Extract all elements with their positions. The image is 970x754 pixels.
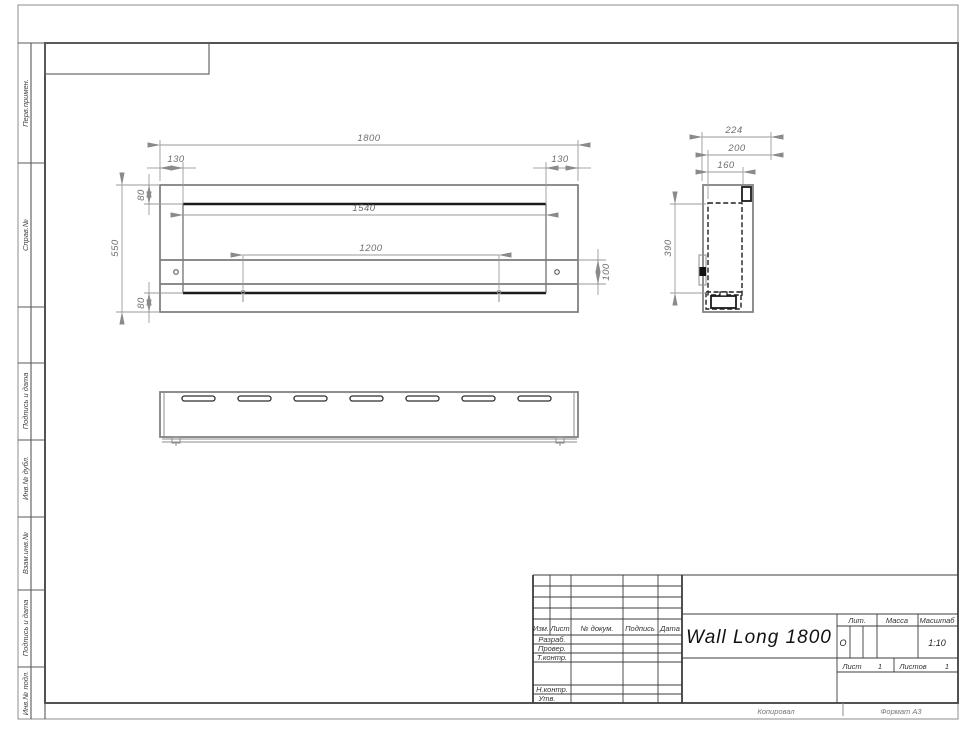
svg-text:1540: 1540 (352, 203, 375, 214)
side-view: 224 200 160 390 (663, 125, 771, 312)
tb-col-data: Дата (659, 624, 680, 633)
dim-opening-height: 390 (663, 204, 675, 293)
margin-label-podpis-data-1: Подпись и дата (21, 373, 30, 430)
tb-scale-value: 1:10 (928, 638, 946, 648)
side-outer-body (703, 185, 753, 312)
svg-text:80: 80 (136, 189, 147, 201)
mounting-hole-left (174, 270, 179, 275)
tb-lit-label: Лит. (847, 616, 866, 625)
margin-label-sprav: Справ.№ (21, 219, 30, 251)
tb-row-prover: Провер. (538, 644, 566, 653)
margin-label-perv-primen: Перв.примен. (21, 79, 30, 127)
dim-overall-width: 1800 (160, 133, 578, 145)
mounting-hole-right (555, 270, 560, 275)
drawing-sheet: Перв.примен. Справ.№ Подпись и дата Инв.… (0, 0, 970, 749)
side-wall-bracket-pad (700, 267, 707, 276)
dim-depth-body: 200 (708, 143, 771, 155)
tb-row-tkontr: Т.контр. (537, 653, 567, 662)
svg-text:200: 200 (727, 143, 746, 154)
tb-col-izm: Изм. (533, 624, 549, 633)
tb-sheet-label: Лист (841, 662, 861, 671)
dim-inset-left: 130 (147, 154, 196, 168)
side-inner-hidden-box (708, 203, 742, 295)
svg-text:224: 224 (724, 125, 742, 136)
tb-sheets-label: Листов (898, 662, 926, 671)
tb-mass-label: Масса (886, 616, 908, 625)
svg-text:130: 130 (167, 154, 185, 165)
dim-bracket-height: 100 (598, 249, 612, 295)
dim-top-offset: 80 (136, 174, 149, 215)
vent-slots (182, 396, 551, 401)
front-view: 1800 130 130 80 550 (110, 133, 612, 323)
drawing-canvas: Перв.примен. Справ.№ Подпись и дата Инв.… (0, 0, 970, 749)
tb-row-nkontr: Н.контр. (536, 685, 568, 694)
svg-text:390: 390 (663, 239, 674, 257)
tb-sheets-total: 1 (945, 662, 949, 671)
margin-label-vzam-inv: Взам.инв.№ (21, 532, 30, 574)
svg-text:550: 550 (110, 239, 121, 257)
footer-format-label: Формат А3 (880, 707, 922, 716)
footer-copy-label: Копировал (757, 707, 795, 716)
svg-text:130: 130 (551, 154, 569, 165)
left-margin-strip: Перв.примен. Справ.№ Подпись и дата Инв.… (18, 43, 45, 719)
bottom-view (160, 392, 578, 446)
side-burner-box (711, 296, 736, 308)
tb-scale-label: Масштаб (919, 616, 955, 625)
sheet-border (18, 5, 958, 719)
tb-row-razrab: Разраб. (538, 635, 565, 644)
document-title: Wall Long 1800 (686, 627, 832, 648)
margin-label-inv-dubl: Инв.№ дубл. (21, 456, 30, 500)
footer: Копировал Формат А3 (757, 703, 922, 716)
dim-overall-height: 550 (110, 185, 122, 312)
svg-text:1800: 1800 (357, 133, 380, 144)
dim-slot-width: 1200 (243, 243, 499, 255)
svg-text:80: 80 (136, 297, 147, 309)
margin-label-inv-podl: Инв.№ подл. (21, 671, 30, 715)
tb-col-podpis: Подпись (625, 624, 655, 633)
svg-text:100: 100 (601, 263, 612, 281)
margin-label-podpis-data-2: Подпись и дата (21, 600, 30, 657)
dim-depth-inner: 160 (708, 160, 743, 172)
tb-col-list: Лист (549, 624, 569, 633)
side-top-bracket (742, 187, 751, 201)
svg-text:1200: 1200 (359, 243, 382, 254)
dim-bottom-offset: 80 (136, 282, 149, 323)
tb-lit-value: О (839, 638, 846, 648)
svg-text:160: 160 (717, 160, 735, 171)
dim-inset-right: 130 (533, 154, 591, 168)
tb-col-doc: № докум. (580, 624, 613, 633)
dim-depth-total: 224 (702, 125, 771, 137)
title-block: Изм. Лист № докум. Подпись Дата Разраб. … (533, 575, 958, 703)
top-left-designation-box (45, 43, 209, 74)
side-burner-notch (720, 292, 727, 296)
tb-sheet-number: 1 (878, 662, 882, 671)
tb-row-utv: Утв. (537, 694, 555, 703)
